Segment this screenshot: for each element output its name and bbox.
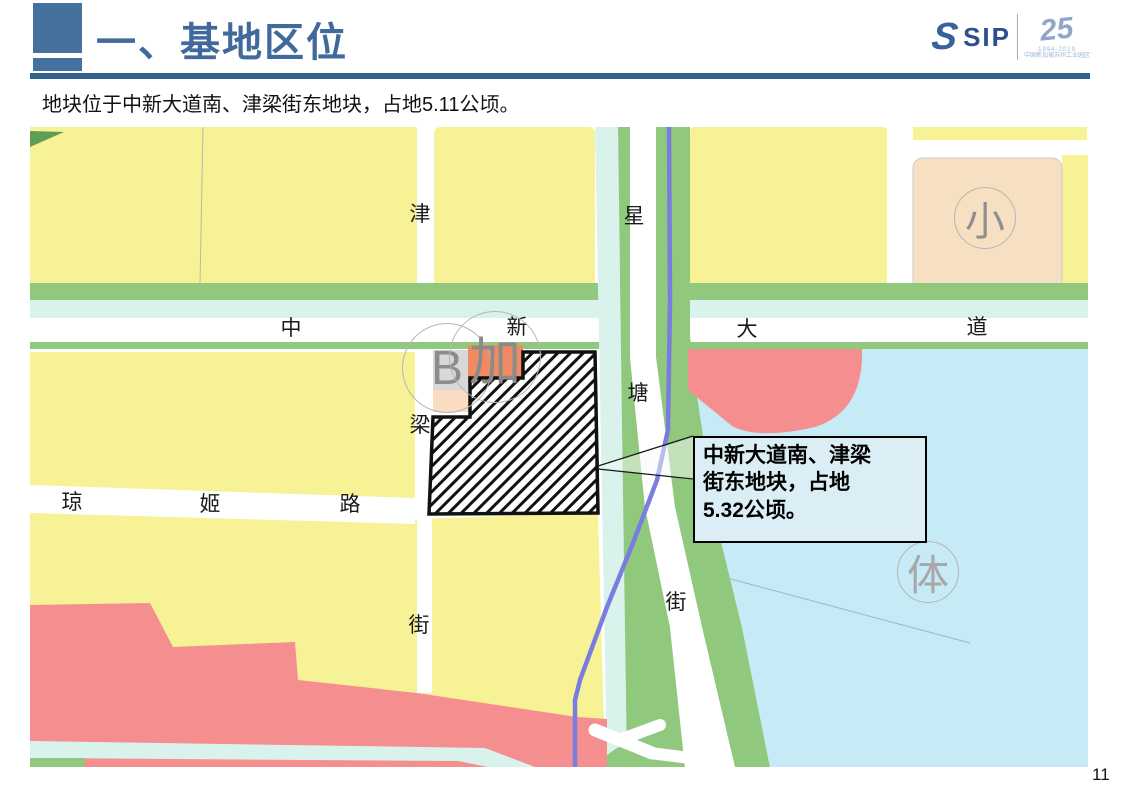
road-label-tang: 塘: [628, 377, 649, 407]
page-title: 一、基地区位: [96, 10, 348, 68]
anniversary-org: 中国新加坡苏州工业园区: [1024, 53, 1090, 59]
callout-line-3: 5.32公顷。: [703, 497, 917, 524]
road-label-da: 大: [737, 313, 758, 343]
header-rule: [30, 73, 1090, 79]
callout-line-1: 中新大道南、津梁: [703, 442, 917, 469]
area-label-jia: 加: [449, 311, 541, 403]
location-map: 津 星 中 新 大 道 梁 塘 琼 姬 路 街 街 B 加 小 体 中新大道南、…: [30, 127, 1088, 767]
slide: 一、基地区位 S SIP 25 1994-2019 中国新加坡苏州工业园区 地块…: [0, 0, 1123, 794]
road-label-liang: 梁: [410, 409, 431, 439]
sip-logo-text: SIP: [963, 24, 1011, 50]
zhongxin-avenue: [30, 283, 1088, 349]
sip-logo-s-icon: S: [929, 18, 960, 56]
road-label-lu: 路: [340, 488, 361, 518]
road-label-qiong: 琼: [62, 486, 83, 516]
intro-text: 地块位于中新大道南、津梁街东地块，占地5.11公顷。: [42, 88, 519, 117]
page-number: 11: [1092, 765, 1110, 785]
sip-logo: S SIP 25 1994-2019 中国新加坡苏州工业园区: [932, 12, 1090, 62]
road-label-jie-right: 街: [666, 586, 687, 616]
road-label-jin: 津: [410, 198, 431, 228]
area-label-ti: 体: [897, 541, 959, 603]
title-accent-bar: [33, 58, 82, 71]
green-bottom-corner: [30, 758, 85, 767]
logo-divider: [1017, 14, 1018, 60]
road-label-dao: 道: [967, 311, 988, 341]
callout-line-2: 街东地块，占地: [703, 469, 917, 496]
anniversary-25: 25: [1039, 13, 1075, 46]
road-label-ji: 姬: [200, 488, 221, 518]
road-label-jie-left: 街: [409, 609, 430, 639]
road-label-xing: 星: [624, 200, 645, 230]
area-label-xiao: 小: [954, 187, 1016, 249]
pink-bottom-sliver: [85, 760, 170, 767]
title-accent-square: [33, 3, 82, 53]
site-callout: 中新大道南、津梁 街东地块，占地 5.32公顷。: [693, 436, 927, 543]
road-label-zhong: 中: [281, 312, 302, 342]
anniversary-logo: 25 1994-2019 中国新加坡苏州工业园区: [1024, 15, 1090, 59]
map-canvas: [30, 127, 1088, 767]
